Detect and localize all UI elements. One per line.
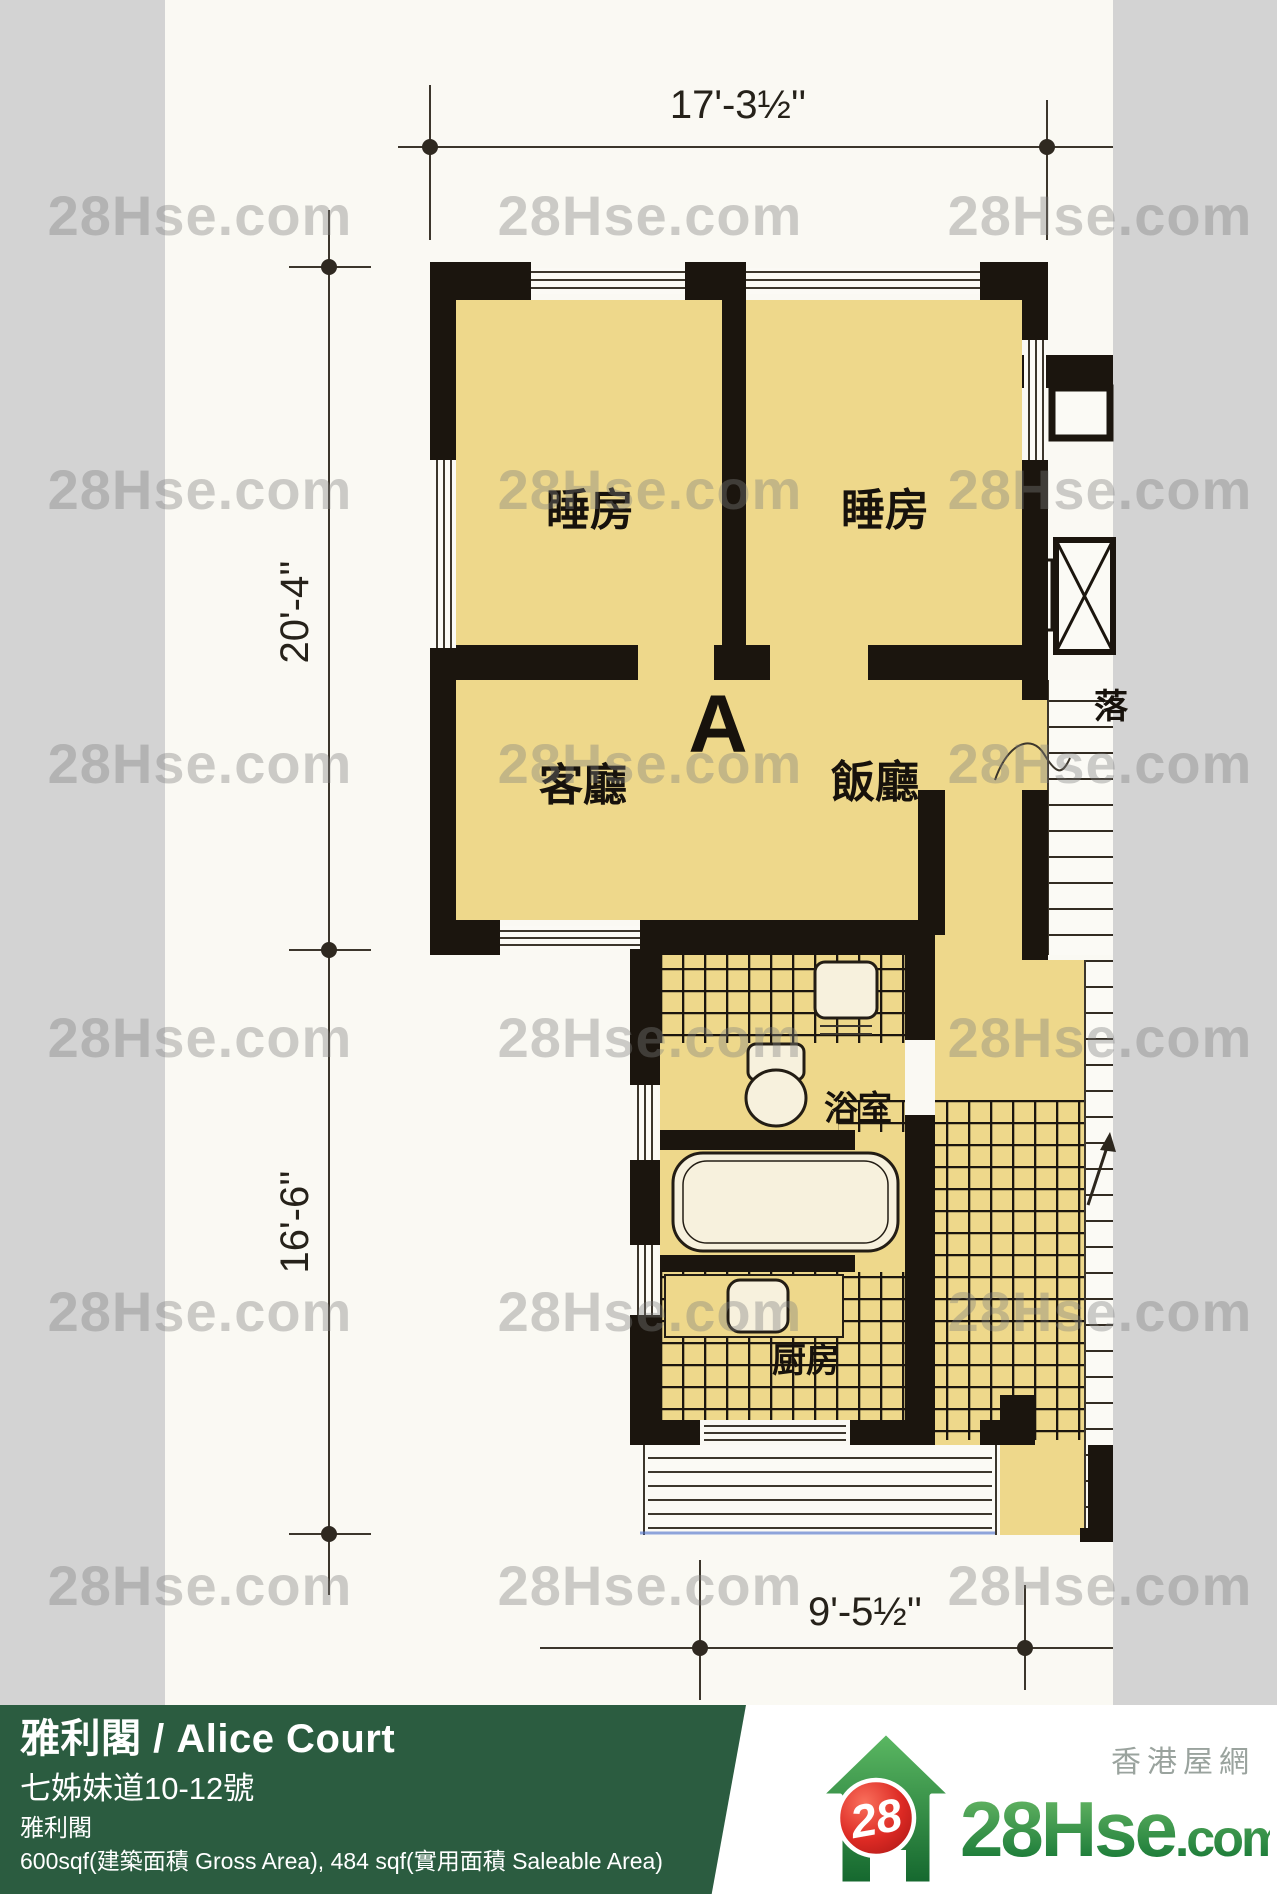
property-info-bar: 雅利閣 / Alice Court 七姊妹道10-12號 雅利閣 600sqf(… xyxy=(0,1705,746,1894)
bathtub xyxy=(673,1153,898,1251)
watermark-text: 28Hse.com xyxy=(948,1554,1253,1617)
property-address: 七姊妹道10-12號 xyxy=(20,1771,746,1807)
watermark-text: 28Hse.com xyxy=(948,1006,1253,1069)
bedroom-2-label: 睡房 xyxy=(841,486,929,535)
corridor-char: 落 xyxy=(1094,688,1129,726)
logo-badge-number: 28 xyxy=(845,1788,906,1848)
watermark-text: 28Hse.com xyxy=(498,1554,803,1617)
floor-plan-image: 落 17'-3½'' 20'-4'' 16'-6'' 9'-5½'' 睡房 睡房 xyxy=(0,0,1277,1705)
property-building: 雅利閣 xyxy=(20,1815,746,1843)
watermark-text: 28Hse.com xyxy=(498,732,803,795)
watermark-text: 28Hse.com xyxy=(48,458,353,521)
watermark-text: 28Hse.com xyxy=(498,458,803,521)
logo-house-icon: 28 xyxy=(820,1732,952,1884)
watermark-text: 28Hse.com xyxy=(498,1006,803,1069)
dim-left-upper: 20'-4'' xyxy=(273,561,317,664)
watermark-text: 28Hse.com xyxy=(948,1280,1253,1343)
property-title: 雅利閣 / Alice Court xyxy=(20,1715,746,1763)
yard xyxy=(640,1445,1000,1535)
watermark-text: 28Hse.com xyxy=(498,184,803,247)
page: 落 17'-3½'' 20'-4'' 16'-6'' 9'-5½'' 睡房 睡房 xyxy=(0,0,1277,1894)
watermark-text: 28Hse.com xyxy=(948,184,1253,247)
watermark-text: 28Hse.com xyxy=(48,1554,353,1617)
property-area: 600sqf(建築面積 Gross Area), 484 sqf(實用面積 Sa… xyxy=(20,1847,746,1875)
watermark-text: 28Hse.com xyxy=(948,732,1253,795)
cistern xyxy=(815,962,877,1018)
watermark-text: 28Hse.com xyxy=(948,458,1253,521)
watermark-text: 28Hse.com xyxy=(48,184,353,247)
watermark-text: 28Hse.com xyxy=(48,732,353,795)
dim-top: 17'-3½'' xyxy=(670,83,806,127)
logo-wordmark: 28Hse.com xyxy=(960,1785,1270,1873)
watermark-text: 28Hse.com xyxy=(498,1280,803,1343)
watermark-text: 28Hse.com xyxy=(48,1006,353,1069)
dim-left-lower: 16'-6'' xyxy=(273,1171,317,1274)
logo-cn-name: 香港屋網 xyxy=(1111,1746,1255,1779)
site-logo: 28 香港屋網 28Hse.com xyxy=(800,1716,1270,1892)
dim-bottom: 9'-5½'' xyxy=(808,1590,922,1634)
kitchen-label: 厨房 xyxy=(772,1342,840,1380)
watermark-text: 28Hse.com xyxy=(48,1280,353,1343)
dining-room-label: 飯廳 xyxy=(831,758,919,807)
toilet-bowl xyxy=(746,1070,806,1126)
bathroom-label: 浴室 xyxy=(824,1089,892,1128)
